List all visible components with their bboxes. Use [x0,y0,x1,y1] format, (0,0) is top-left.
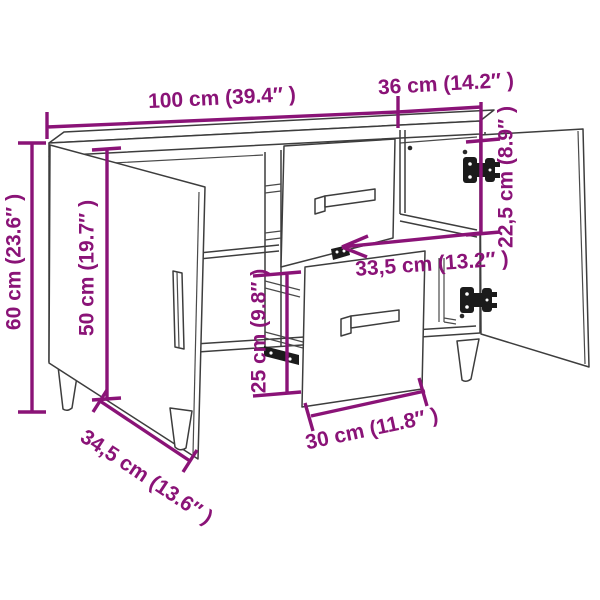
dim-label-door-height: 50 cm (19.7″ ) [76,200,99,336]
dim-label-depth: 36 cm (14.2″ ) [377,69,514,100]
pin-hole [460,314,465,319]
leg-front-right [457,339,479,381]
pin-hole [463,150,468,155]
product-dimension-diagram: 100 cm (39.4″ ) 36 cm (14.2″ ) 60 cm (23… [0,0,600,600]
door-hinge-icon [460,287,497,313]
dim-overall-height: 60 cm (23.6″ ) [3,143,46,412]
diagram-canvas: 100 cm (39.4″ ) 36 cm (14.2″ ) 60 cm (23… [0,0,600,600]
dim-label-overall-height: 60 cm (23.6″ ) [3,194,26,330]
dim-label-upper-compartment-height: 22,5 cm (8.9″ ) [495,106,518,248]
top-drawer [281,139,395,267]
dim-label-overall-width: 100 cm (39.4″ ) [148,83,297,113]
door-handle [173,271,184,349]
dim-label-drawer-width: 30 cm (11.8″ ) [303,404,440,455]
dim-label-drawer-height: 25 cm (9.8″ ) [248,269,271,393]
pin-hole [408,146,413,151]
